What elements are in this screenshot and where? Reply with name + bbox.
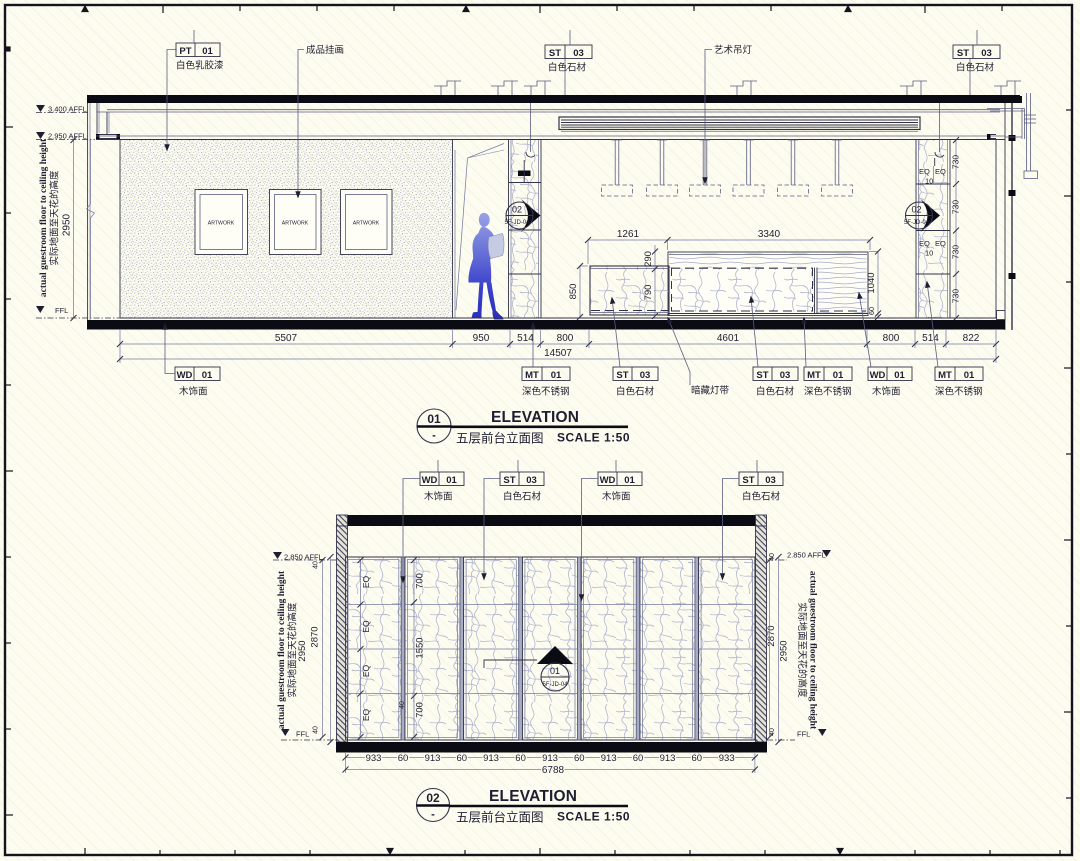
svg-text:木饰面: 木饰面 xyxy=(602,491,631,503)
svg-text:02: 02 xyxy=(512,205,522,215)
svg-text:ST: ST xyxy=(756,370,768,381)
svg-text:2950: 2950 xyxy=(779,640,790,661)
svg-text:913: 913 xyxy=(425,753,441,764)
svg-text:WD: WD xyxy=(177,370,193,381)
svg-text:白色石材: 白色石材 xyxy=(956,62,995,74)
svg-text:01: 01 xyxy=(833,370,844,381)
svg-text:艺术吊灯: 艺术吊灯 xyxy=(714,44,753,56)
svg-text:01: 01 xyxy=(551,370,562,381)
svg-text:60: 60 xyxy=(515,753,526,764)
svg-text:2950: 2950 xyxy=(297,640,308,661)
svg-text:白色乳胶漆: 白色乳胶漆 xyxy=(176,60,224,72)
svg-text:01: 01 xyxy=(202,370,213,381)
svg-text:ST: ST xyxy=(549,48,561,59)
svg-text:790: 790 xyxy=(643,285,654,301)
svg-text:1550: 1550 xyxy=(415,637,426,658)
svg-text:EQ: EQ xyxy=(361,620,371,633)
svg-text:五层前台立面图: 五层前台立面图 xyxy=(456,431,544,446)
svg-text:40: 40 xyxy=(399,701,406,709)
svg-text:10: 10 xyxy=(925,249,933,258)
svg-text:913: 913 xyxy=(601,753,617,764)
svg-text:EQ: EQ xyxy=(361,708,371,721)
svg-text:4601: 4601 xyxy=(717,333,740,344)
svg-text:800: 800 xyxy=(883,333,900,344)
svg-text:ARTWORK: ARTWORK xyxy=(353,221,380,227)
svg-text:02: 02 xyxy=(426,791,440,805)
svg-text:850: 850 xyxy=(568,284,579,300)
svg-text:MT: MT xyxy=(525,370,539,381)
svg-text:1261: 1261 xyxy=(617,229,640,240)
svg-text:03: 03 xyxy=(780,370,791,381)
svg-text:MT: MT xyxy=(807,370,821,381)
svg-text:白色石材: 白色石材 xyxy=(742,491,781,503)
svg-text:EQ: EQ xyxy=(935,239,946,248)
svg-text:EQ: EQ xyxy=(361,575,371,588)
svg-text:290: 290 xyxy=(643,251,654,267)
svg-text:03: 03 xyxy=(640,370,651,381)
svg-text:730: 730 xyxy=(951,200,961,214)
svg-text:五层前台立面图: 五层前台立面图 xyxy=(456,810,544,825)
svg-text:SCALE 1:50: SCALE 1:50 xyxy=(557,431,630,445)
svg-text:60: 60 xyxy=(633,753,644,764)
svg-text:暗藏灯带: 暗藏灯带 xyxy=(691,385,730,397)
svg-text:01: 01 xyxy=(624,475,635,486)
svg-text:700: 700 xyxy=(415,702,426,718)
svg-text:01: 01 xyxy=(894,370,905,381)
svg-text:950: 950 xyxy=(473,333,490,344)
svg-text:03: 03 xyxy=(573,48,584,59)
svg-text:01: 01 xyxy=(446,475,457,486)
svg-text:白色石材: 白色石材 xyxy=(503,491,542,503)
svg-text:5507: 5507 xyxy=(275,333,298,344)
svg-text:2870: 2870 xyxy=(766,625,777,646)
svg-text:913: 913 xyxy=(660,753,676,764)
svg-text:02: 02 xyxy=(911,205,921,215)
svg-text:2870: 2870 xyxy=(310,626,321,647)
svg-text:ST: ST xyxy=(616,370,628,381)
svg-text:800: 800 xyxy=(557,333,574,344)
svg-text:5F-JD-04: 5F-JD-04 xyxy=(504,220,530,226)
svg-text:913: 913 xyxy=(483,753,499,764)
svg-text:深色不锈钢: 深色不锈钢 xyxy=(935,386,983,398)
svg-text:成品挂画: 成品挂画 xyxy=(306,44,344,56)
svg-text:3340: 3340 xyxy=(758,229,781,240)
svg-text:ELEVATION: ELEVATION xyxy=(491,409,579,426)
svg-text:2950: 2950 xyxy=(62,213,73,236)
svg-text:FFL: FFL xyxy=(55,306,68,315)
svg-text:5F-JD-04: 5F-JD-04 xyxy=(542,682,568,688)
svg-text:actual guestroom floor to ceil: actual guestroom floor to ceiling height xyxy=(808,571,818,730)
svg-text:WD: WD xyxy=(870,370,886,381)
svg-text:40: 40 xyxy=(313,561,320,569)
svg-text:514: 514 xyxy=(517,333,534,344)
svg-text:822: 822 xyxy=(963,333,980,344)
svg-text:-: - xyxy=(432,430,436,442)
svg-text:木饰面: 木饰面 xyxy=(179,386,208,398)
svg-text:514: 514 xyxy=(922,333,939,344)
svg-text:实际地面至天花的高度: 实际地面至天花的高度 xyxy=(796,602,808,698)
svg-text:2.850 AFFL: 2.850 AFFL xyxy=(787,551,826,560)
svg-text:ARTWORK: ARTWORK xyxy=(282,221,309,227)
svg-text:木饰面: 木饰面 xyxy=(872,386,901,398)
svg-text:MT: MT xyxy=(938,370,952,381)
svg-text:60: 60 xyxy=(398,753,409,764)
svg-text:EQ: EQ xyxy=(361,664,371,677)
svg-text:-: - xyxy=(431,809,435,821)
svg-text:913: 913 xyxy=(542,753,558,764)
svg-text:WD: WD xyxy=(422,475,438,486)
svg-text:6788: 6788 xyxy=(542,765,565,776)
svg-text:深色不锈钢: 深色不锈钢 xyxy=(522,386,570,398)
svg-text:ST: ST xyxy=(503,475,515,486)
svg-text:深色不锈钢: 深色不锈钢 xyxy=(804,386,852,398)
svg-text:ARTWORK: ARTWORK xyxy=(208,221,235,227)
svg-text:730: 730 xyxy=(951,245,961,259)
svg-text:03: 03 xyxy=(765,475,776,486)
svg-text:700: 700 xyxy=(415,573,426,589)
svg-text:WD: WD xyxy=(600,475,616,486)
svg-text:实际地面至天花的高度: 实际地面至天花的高度 xyxy=(49,170,61,266)
svg-text:FFL: FFL xyxy=(296,730,309,739)
svg-text:actual guestroom floor to ceil: actual guestroom floor to ceiling height xyxy=(39,138,49,297)
svg-text:730: 730 xyxy=(951,155,961,169)
svg-text:ST: ST xyxy=(742,475,754,486)
svg-text:EQ: EQ xyxy=(935,167,946,176)
svg-text:60: 60 xyxy=(867,307,876,315)
svg-text:03: 03 xyxy=(526,475,537,486)
svg-text:60: 60 xyxy=(457,753,468,764)
svg-text:FFL: FFL xyxy=(797,730,810,739)
svg-text:白色石材: 白色石材 xyxy=(756,386,795,398)
svg-text:SCALE 1:50: SCALE 1:50 xyxy=(557,810,630,824)
svg-text:730: 730 xyxy=(951,289,961,303)
svg-text:1040: 1040 xyxy=(866,272,877,293)
svg-text:5F-JD-04: 5F-JD-04 xyxy=(904,220,930,226)
svg-text:60: 60 xyxy=(692,753,703,764)
svg-text:ST: ST xyxy=(957,48,969,59)
svg-text:actual guestroom floor to ceil: actual guestroom floor to ceiling height xyxy=(277,570,287,729)
svg-text:60: 60 xyxy=(574,753,585,764)
svg-text:木饰面: 木饰面 xyxy=(424,491,453,503)
svg-text:EQ: EQ xyxy=(919,239,930,248)
svg-text:白色石材: 白色石材 xyxy=(616,386,655,398)
svg-text:EQ: EQ xyxy=(919,167,930,176)
svg-text:10: 10 xyxy=(925,177,933,186)
svg-text:01: 01 xyxy=(550,666,560,676)
svg-text:白色石材: 白色石材 xyxy=(548,62,587,74)
svg-text:933: 933 xyxy=(719,753,735,764)
svg-text:ELEVATION: ELEVATION xyxy=(489,788,577,805)
svg-text:03: 03 xyxy=(981,48,992,59)
svg-text:PT: PT xyxy=(179,46,191,57)
svg-text:933: 933 xyxy=(366,753,382,764)
svg-text:01: 01 xyxy=(202,46,213,57)
svg-text:14507: 14507 xyxy=(544,348,572,359)
svg-text:01: 01 xyxy=(964,370,975,381)
svg-text:40: 40 xyxy=(313,726,320,734)
svg-text:01: 01 xyxy=(427,412,441,426)
